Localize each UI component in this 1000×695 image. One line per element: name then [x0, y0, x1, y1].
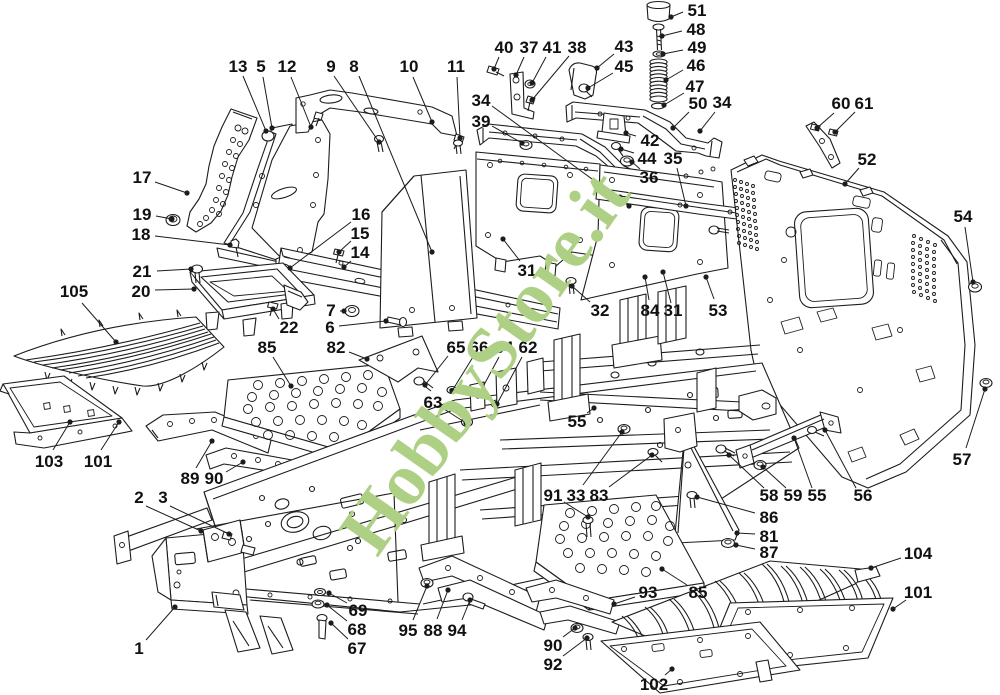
svg-text:92: 92 — [544, 655, 563, 674]
svg-text:47: 47 — [686, 77, 705, 96]
svg-text:49: 49 — [688, 38, 707, 57]
svg-text:44: 44 — [638, 149, 657, 168]
svg-text:86: 86 — [760, 508, 779, 527]
svg-text:82: 82 — [327, 338, 346, 357]
svg-text:38: 38 — [568, 38, 587, 57]
svg-text:3: 3 — [158, 488, 167, 507]
svg-text:101: 101 — [84, 452, 112, 471]
svg-text:93: 93 — [639, 583, 658, 602]
svg-text:34: 34 — [472, 91, 491, 110]
svg-text:95: 95 — [399, 621, 418, 640]
svg-text:18: 18 — [132, 225, 151, 244]
svg-text:83: 83 — [590, 486, 609, 505]
svg-text:7: 7 — [326, 301, 335, 320]
svg-text:32: 32 — [591, 301, 610, 320]
svg-text:11: 11 — [447, 57, 465, 76]
svg-text:51: 51 — [688, 1, 707, 20]
svg-text:68: 68 — [348, 620, 367, 639]
svg-text:69: 69 — [349, 601, 368, 620]
svg-text:37: 37 — [520, 38, 539, 57]
svg-text:1: 1 — [134, 639, 143, 658]
svg-text:33: 33 — [567, 486, 586, 505]
svg-text:88: 88 — [424, 621, 443, 640]
svg-text:35: 35 — [664, 149, 683, 168]
svg-text:6: 6 — [325, 318, 334, 337]
svg-text:22: 22 — [280, 318, 299, 337]
svg-text:20: 20 — [132, 282, 151, 301]
svg-text:60: 60 — [832, 94, 851, 113]
svg-text:52: 52 — [858, 150, 877, 169]
svg-text:59: 59 — [784, 486, 803, 505]
svg-text:31: 31 — [664, 301, 683, 320]
svg-text:43: 43 — [615, 37, 634, 56]
svg-text:102: 102 — [640, 675, 668, 694]
svg-text:16: 16 — [352, 205, 371, 224]
svg-text:58: 58 — [760, 486, 779, 505]
svg-text:54: 54 — [954, 207, 973, 226]
svg-text:2: 2 — [134, 488, 143, 507]
svg-text:103: 103 — [35, 452, 63, 471]
svg-text:34: 34 — [713, 93, 732, 112]
svg-text:105: 105 — [60, 282, 88, 301]
svg-text:17: 17 — [133, 168, 152, 187]
svg-text:39: 39 — [472, 112, 491, 131]
svg-text:45: 45 — [615, 57, 634, 76]
svg-text:42: 42 — [641, 131, 660, 150]
svg-text:41: 41 — [543, 38, 562, 57]
svg-text:56: 56 — [854, 486, 873, 505]
svg-text:85: 85 — [689, 583, 708, 602]
svg-text:90: 90 — [205, 469, 224, 488]
svg-text:9: 9 — [326, 57, 335, 76]
svg-text:87: 87 — [760, 543, 779, 562]
svg-text:104: 104 — [904, 544, 933, 563]
svg-text:67: 67 — [348, 639, 367, 658]
svg-text:19: 19 — [133, 205, 152, 224]
svg-text:21: 21 — [133, 262, 152, 281]
svg-text:8: 8 — [349, 57, 358, 76]
svg-text:61: 61 — [855, 94, 874, 113]
svg-text:13: 13 — [229, 57, 248, 76]
svg-text:85: 85 — [258, 338, 277, 357]
svg-text:14: 14 — [351, 243, 370, 262]
svg-text:5: 5 — [256, 57, 265, 76]
svg-text:55: 55 — [568, 412, 587, 431]
svg-text:50: 50 — [689, 94, 708, 113]
svg-text:10: 10 — [400, 57, 419, 76]
svg-text:84: 84 — [641, 301, 660, 320]
svg-text:40: 40 — [495, 38, 514, 57]
svg-text:46: 46 — [687, 56, 706, 75]
svg-text:12: 12 — [278, 57, 297, 76]
svg-text:57: 57 — [953, 450, 972, 469]
svg-text:94: 94 — [448, 621, 467, 640]
svg-text:91: 91 — [544, 486, 563, 505]
svg-text:101: 101 — [904, 583, 932, 602]
svg-text:15: 15 — [351, 224, 370, 243]
svg-text:90: 90 — [544, 636, 563, 655]
svg-text:55: 55 — [808, 486, 827, 505]
svg-text:53: 53 — [709, 301, 728, 320]
svg-text:89: 89 — [181, 469, 200, 488]
svg-text:48: 48 — [687, 20, 706, 39]
svg-text:36: 36 — [640, 168, 659, 187]
